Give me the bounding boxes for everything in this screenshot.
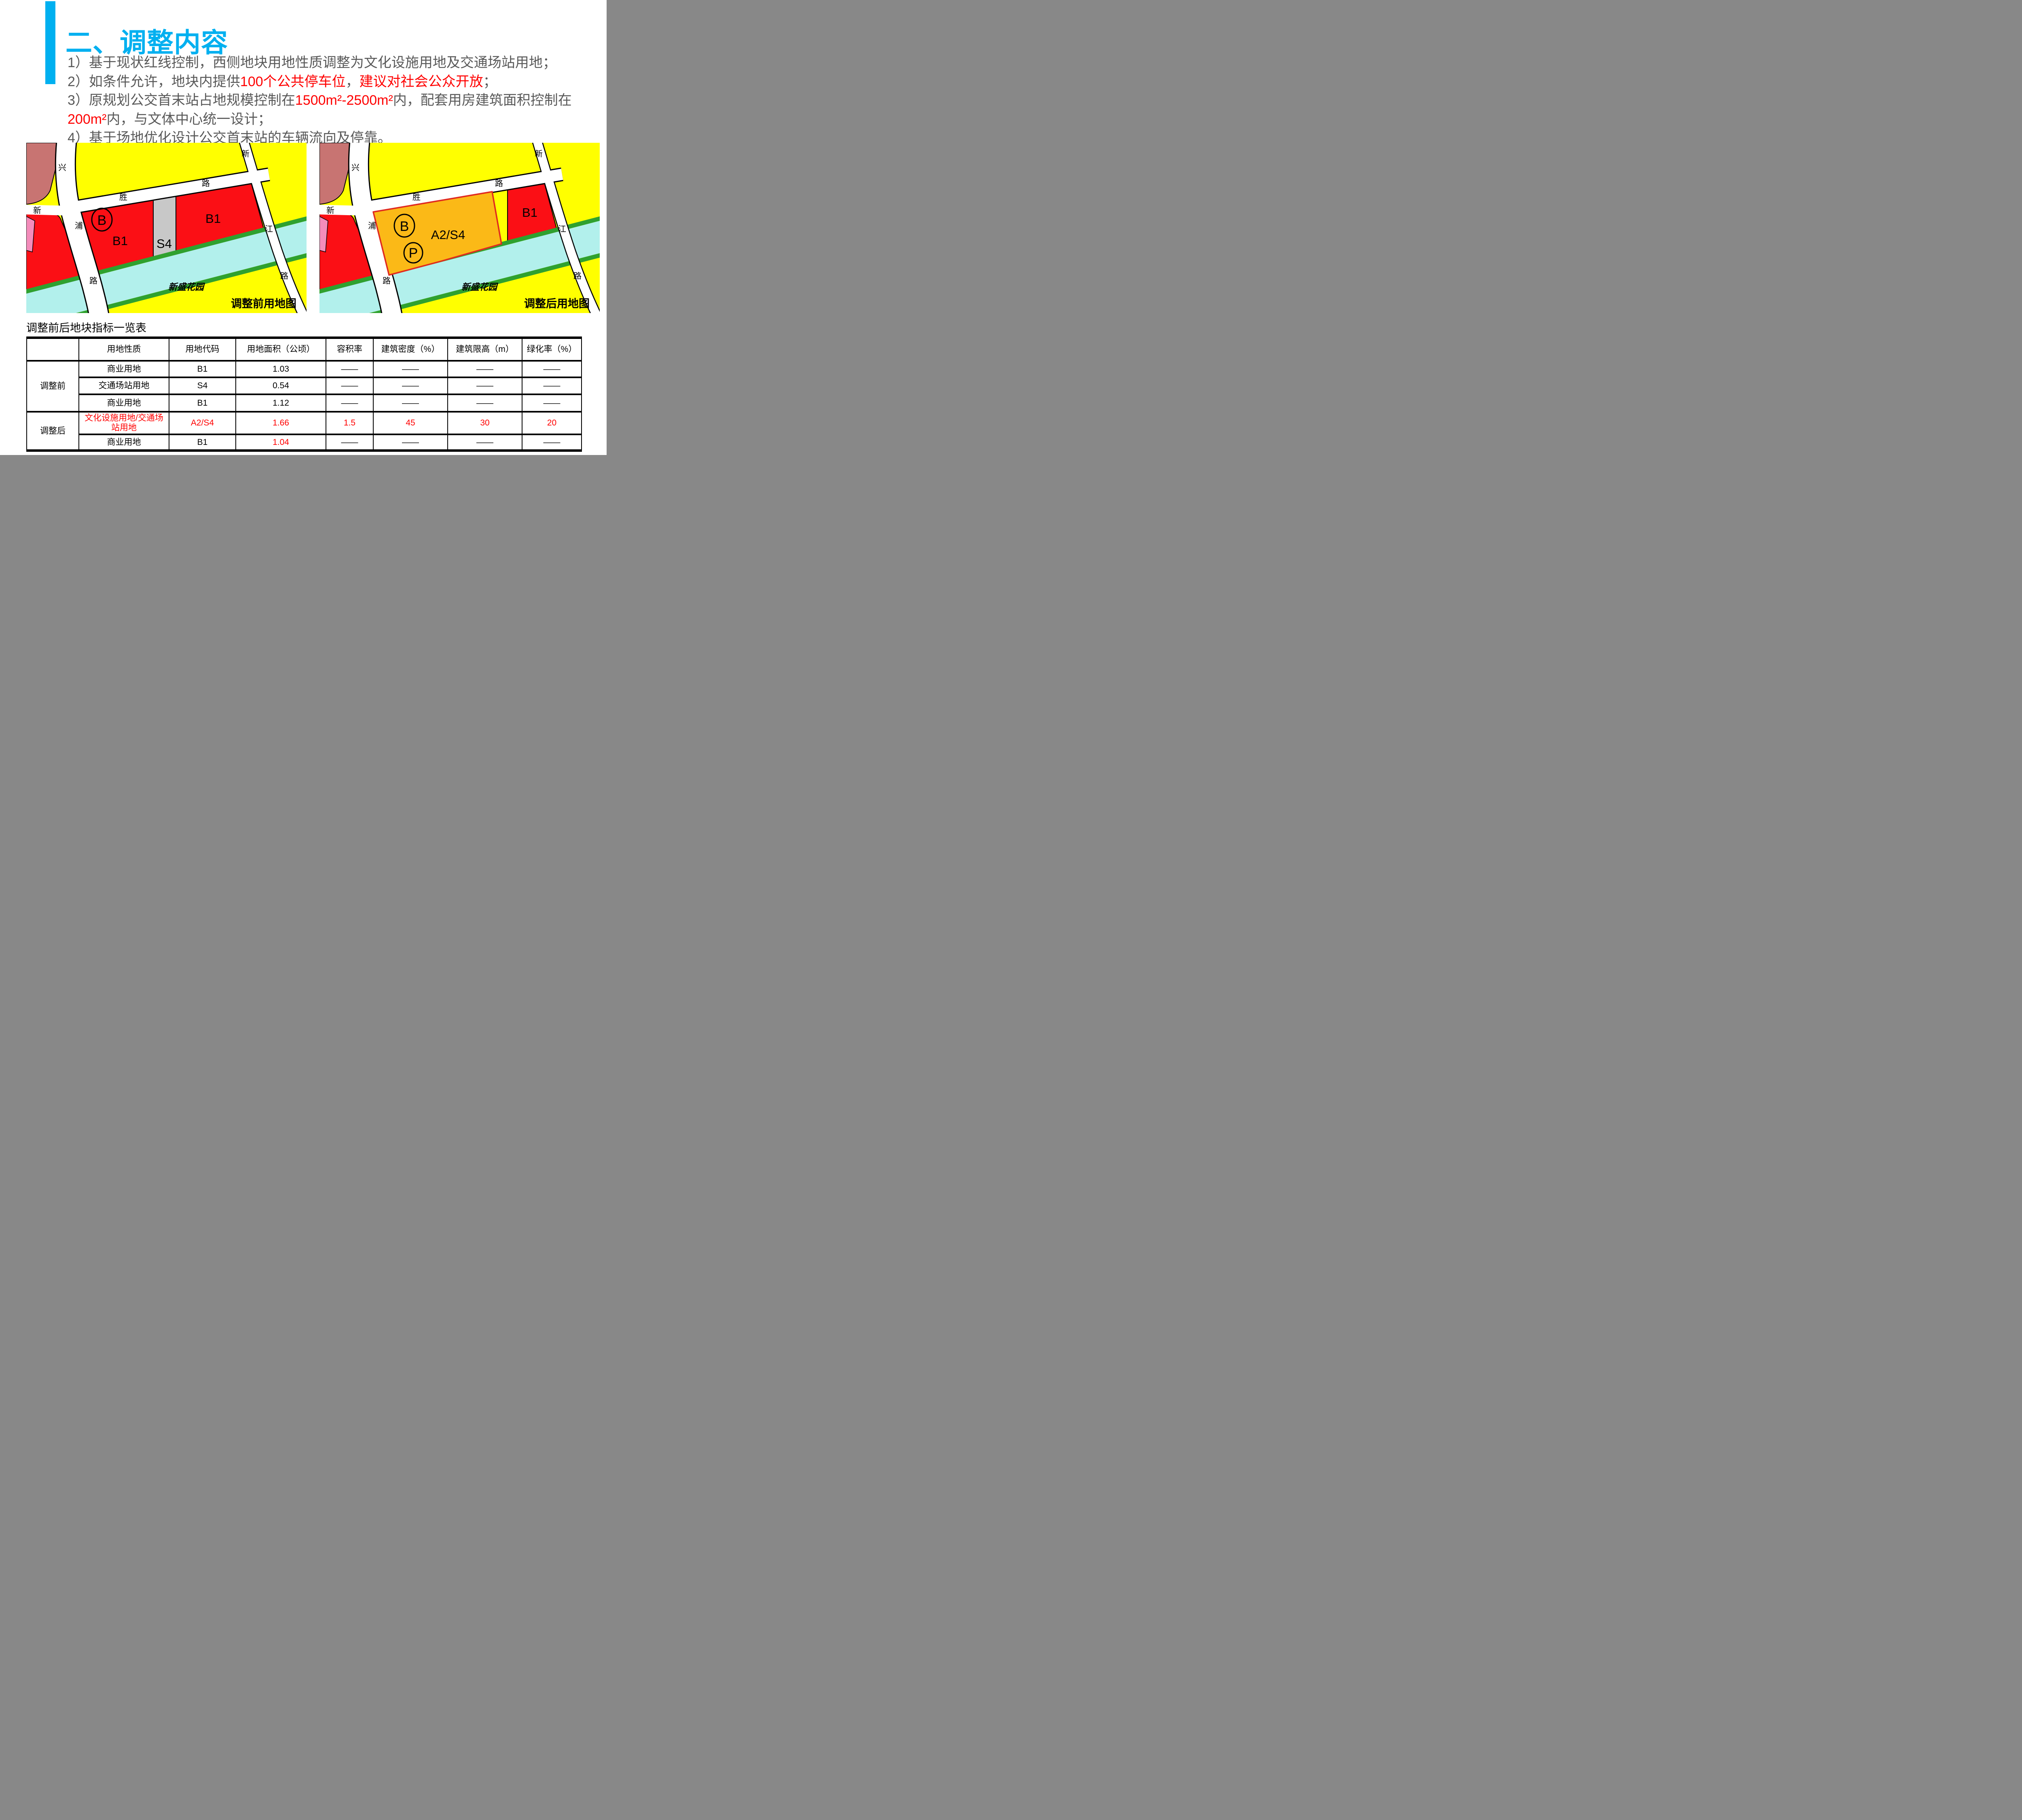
table-cell: ——: [373, 434, 448, 451]
note-text: ，: [346, 74, 360, 89]
header-cell-group: [27, 338, 79, 361]
road-char: 胜: [119, 193, 127, 202]
table-row: 交通场站用地 S4 0.54 —— —— —— ——: [27, 377, 582, 394]
road-char: 兴: [351, 163, 360, 172]
table-cell: ——: [373, 394, 448, 412]
road-char: 江: [558, 224, 566, 234]
table-row: 调整前 商业用地 B1 1.03 —— —— —— ——: [27, 361, 582, 377]
block-b1-right-label: B1: [205, 212, 221, 226]
road-char: 新: [326, 206, 334, 215]
note-text: 内，配套用房建筑面积控制在: [393, 93, 572, 108]
road-char: 浦: [75, 221, 83, 231]
table-cell: B1: [169, 361, 236, 377]
accent-bar: [45, 1, 55, 84]
map-after: B P A2/S4 B1 兴 新 浦 路 胜 路 新 江 路 新盛花园 调整后用…: [319, 143, 600, 313]
table-row: 商业用地 B1 1.04 —— —— —— ——: [27, 434, 582, 451]
road-char: 路: [573, 271, 582, 281]
road-char: 路: [202, 179, 210, 188]
block-b1-left-label: B1: [112, 234, 128, 248]
table-cell: S4: [169, 377, 236, 394]
table-title: 调整前后地块指标一览表: [26, 319, 146, 335]
note-text: 内，与文体中心统一设计；: [106, 112, 271, 127]
block-s4-label: S4: [157, 237, 172, 251]
table-cell: 商业用地: [79, 361, 169, 377]
road-char: 兴: [58, 163, 66, 172]
road-char: 江: [265, 224, 273, 234]
table-cell: 商业用地: [79, 394, 169, 412]
header-cell-green: 绿化率（%）: [522, 338, 582, 361]
row-group-before: 调整前: [27, 361, 79, 412]
table-cell: ——: [326, 377, 373, 394]
circle-b-label: B: [400, 219, 409, 234]
note-line-4: 200m²内，与文体中心统一设计；: [68, 110, 597, 129]
table-cell: ——: [522, 434, 582, 451]
table-cell: 30: [448, 412, 522, 434]
table-cell: ——: [522, 377, 582, 394]
header-cell-code: 用地代码: [169, 338, 236, 361]
note-text: 1）基于现状红线控制，西侧地块用地性质调整为文化设施用地及交通场站用地；: [68, 55, 556, 70]
block-b1-right-label: B1: [522, 205, 537, 220]
note-line-1: 1）基于现状红线控制，西侧地块用地性质调整为文化设施用地及交通场站用地；: [68, 53, 597, 72]
note-line-2: 2）如条件允许，地块内提供100个公共停车位，建议对社会公众开放；: [68, 72, 597, 91]
table-cell: 20: [522, 412, 582, 434]
table-cell: 交通场站用地: [79, 377, 169, 394]
table-cell: 1.5: [326, 412, 373, 434]
table-cell: 0.54: [236, 377, 326, 394]
table-cell: ——: [448, 361, 522, 377]
table-cell: ——: [522, 394, 582, 412]
note-text: 3）原规划公交首末站占地规模控制在: [68, 93, 295, 108]
table-cell: ——: [448, 377, 522, 394]
circle-b-label: B: [97, 213, 107, 228]
table-header-row: 用地性质 用地代码 用地面积（公顷） 容积率 建筑密度（%） 建筑限高（m） 绿…: [27, 338, 582, 361]
table-cell: 1.66: [236, 412, 326, 434]
road-char: 新: [535, 149, 543, 159]
road-char: 路: [383, 276, 391, 286]
note-text: ；: [483, 74, 497, 89]
table-cell: ——: [326, 434, 373, 451]
table-row: 商业用地 B1 1.12 —— —— —— ——: [27, 394, 582, 412]
table-cell: 商业用地: [79, 434, 169, 451]
table-cell: 45: [373, 412, 448, 434]
table-cell: ——: [522, 361, 582, 377]
road-char: 浦: [368, 221, 376, 231]
note-highlight: 100个公共停车位: [240, 74, 346, 89]
road-char: 路: [495, 179, 503, 188]
map-after-caption: 调整后用地图: [524, 298, 590, 310]
note-highlight: 1500m²-2500m²: [295, 93, 393, 108]
road-char: 新: [33, 206, 41, 215]
table-cell: ——: [326, 361, 373, 377]
table-cell: ——: [373, 377, 448, 394]
header-cell-height: 建筑限高（m）: [448, 338, 522, 361]
row-group-after: 调整后: [27, 412, 79, 451]
indicator-table: 用地性质 用地代码 用地面积（公顷） 容积率 建筑密度（%） 建筑限高（m） 绿…: [26, 336, 582, 452]
park-label: 新盛花园: [168, 282, 205, 292]
table-cell: ——: [326, 394, 373, 412]
slide: 二、调整内容 1）基于现状红线控制，西侧地块用地性质调整为文化设施用地及交通场站…: [0, 0, 607, 455]
table-cell: 1.03: [236, 361, 326, 377]
header-cell-far: 容积率: [326, 338, 373, 361]
table-cell: B1: [169, 434, 236, 451]
table-cell: 1.12: [236, 394, 326, 412]
note-highlight: 200m²: [68, 112, 106, 127]
block-a2s4-label: A2/S4: [431, 228, 465, 242]
table-cell: 1.04: [236, 434, 326, 451]
table-cell: A2/S4: [169, 412, 236, 434]
map-before-caption: 调整前用地图: [231, 297, 296, 310]
road-char: 胜: [412, 193, 421, 202]
note-line-3: 3）原规划公交首末站占地规模控制在1500m²-2500m²内，配套用房建筑面积…: [68, 91, 597, 110]
table-cell: 文化设施用地/交通场站用地: [79, 412, 169, 434]
table-row: 调整后 文化设施用地/交通场站用地 A2/S4 1.66 1.5 45 30 2…: [27, 412, 582, 434]
header-cell-land-use: 用地性质: [79, 338, 169, 361]
table-cell: B1: [169, 394, 236, 412]
note-highlight: 建议对社会公众开放: [360, 74, 483, 89]
road-char: 新: [241, 149, 250, 159]
notes-block: 1）基于现状红线控制，西侧地块用地性质调整为文化设施用地及交通场站用地； 2）如…: [68, 53, 597, 148]
table-cell: ——: [373, 361, 448, 377]
header-cell-density: 建筑密度（%）: [373, 338, 448, 361]
road-char: 路: [280, 271, 288, 281]
note-text: 2）如条件允许，地块内提供: [68, 74, 240, 89]
park-label: 新盛花园: [461, 282, 499, 292]
circle-p-label: P: [409, 245, 418, 261]
map-before: B B1 S4 B1 兴 新 浦 路 胜 路 新 江 路 新盛花园 调整前用地图: [26, 143, 307, 313]
table-cell: ——: [448, 434, 522, 451]
table-cell: ——: [448, 394, 522, 412]
road-char: 路: [89, 276, 97, 286]
header-cell-area: 用地面积（公顷）: [236, 338, 326, 361]
